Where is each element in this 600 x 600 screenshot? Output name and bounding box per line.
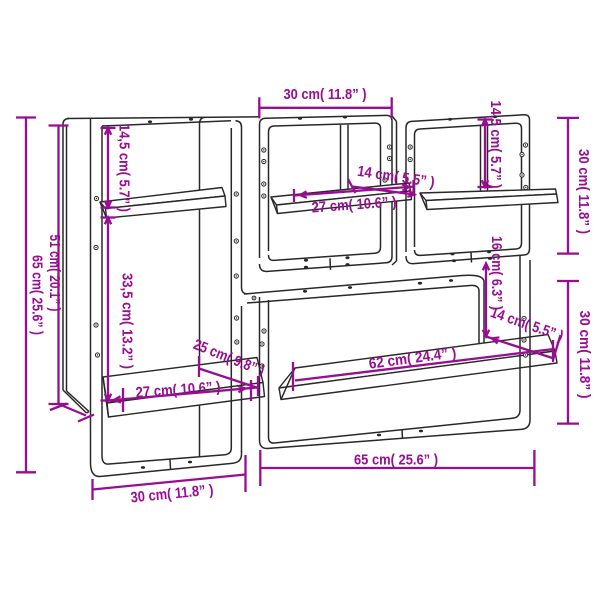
svg-text:16 cm( 6.3” ): 16 cm( 6.3” ) bbox=[488, 236, 505, 310]
svg-text:14,5 cm( 5.7” ): 14,5 cm( 5.7” ) bbox=[116, 124, 133, 212]
svg-text:30 cm( 11.8” ): 30 cm( 11.8” ) bbox=[284, 86, 367, 103]
svg-text:14,5 cm( 5.7” ): 14,5 cm( 5.7” ) bbox=[487, 101, 504, 189]
svg-text:65 cm( 25.6” ): 65 cm( 25.6” ) bbox=[354, 452, 438, 469]
svg-text:51 cm( 20.1” ): 51 cm( 20.1” ) bbox=[46, 235, 63, 312]
svg-text:30 cm( 11.8” ): 30 cm( 11.8” ) bbox=[576, 311, 593, 399]
svg-text:30 cm( 11.8” ): 30 cm( 11.8” ) bbox=[575, 149, 592, 234]
svg-text:65 cm( 25.6” ): 65 cm( 25.6” ) bbox=[29, 255, 46, 335]
svg-text:33,5 cm( 13.2” ): 33,5 cm( 13.2” ) bbox=[119, 273, 136, 369]
